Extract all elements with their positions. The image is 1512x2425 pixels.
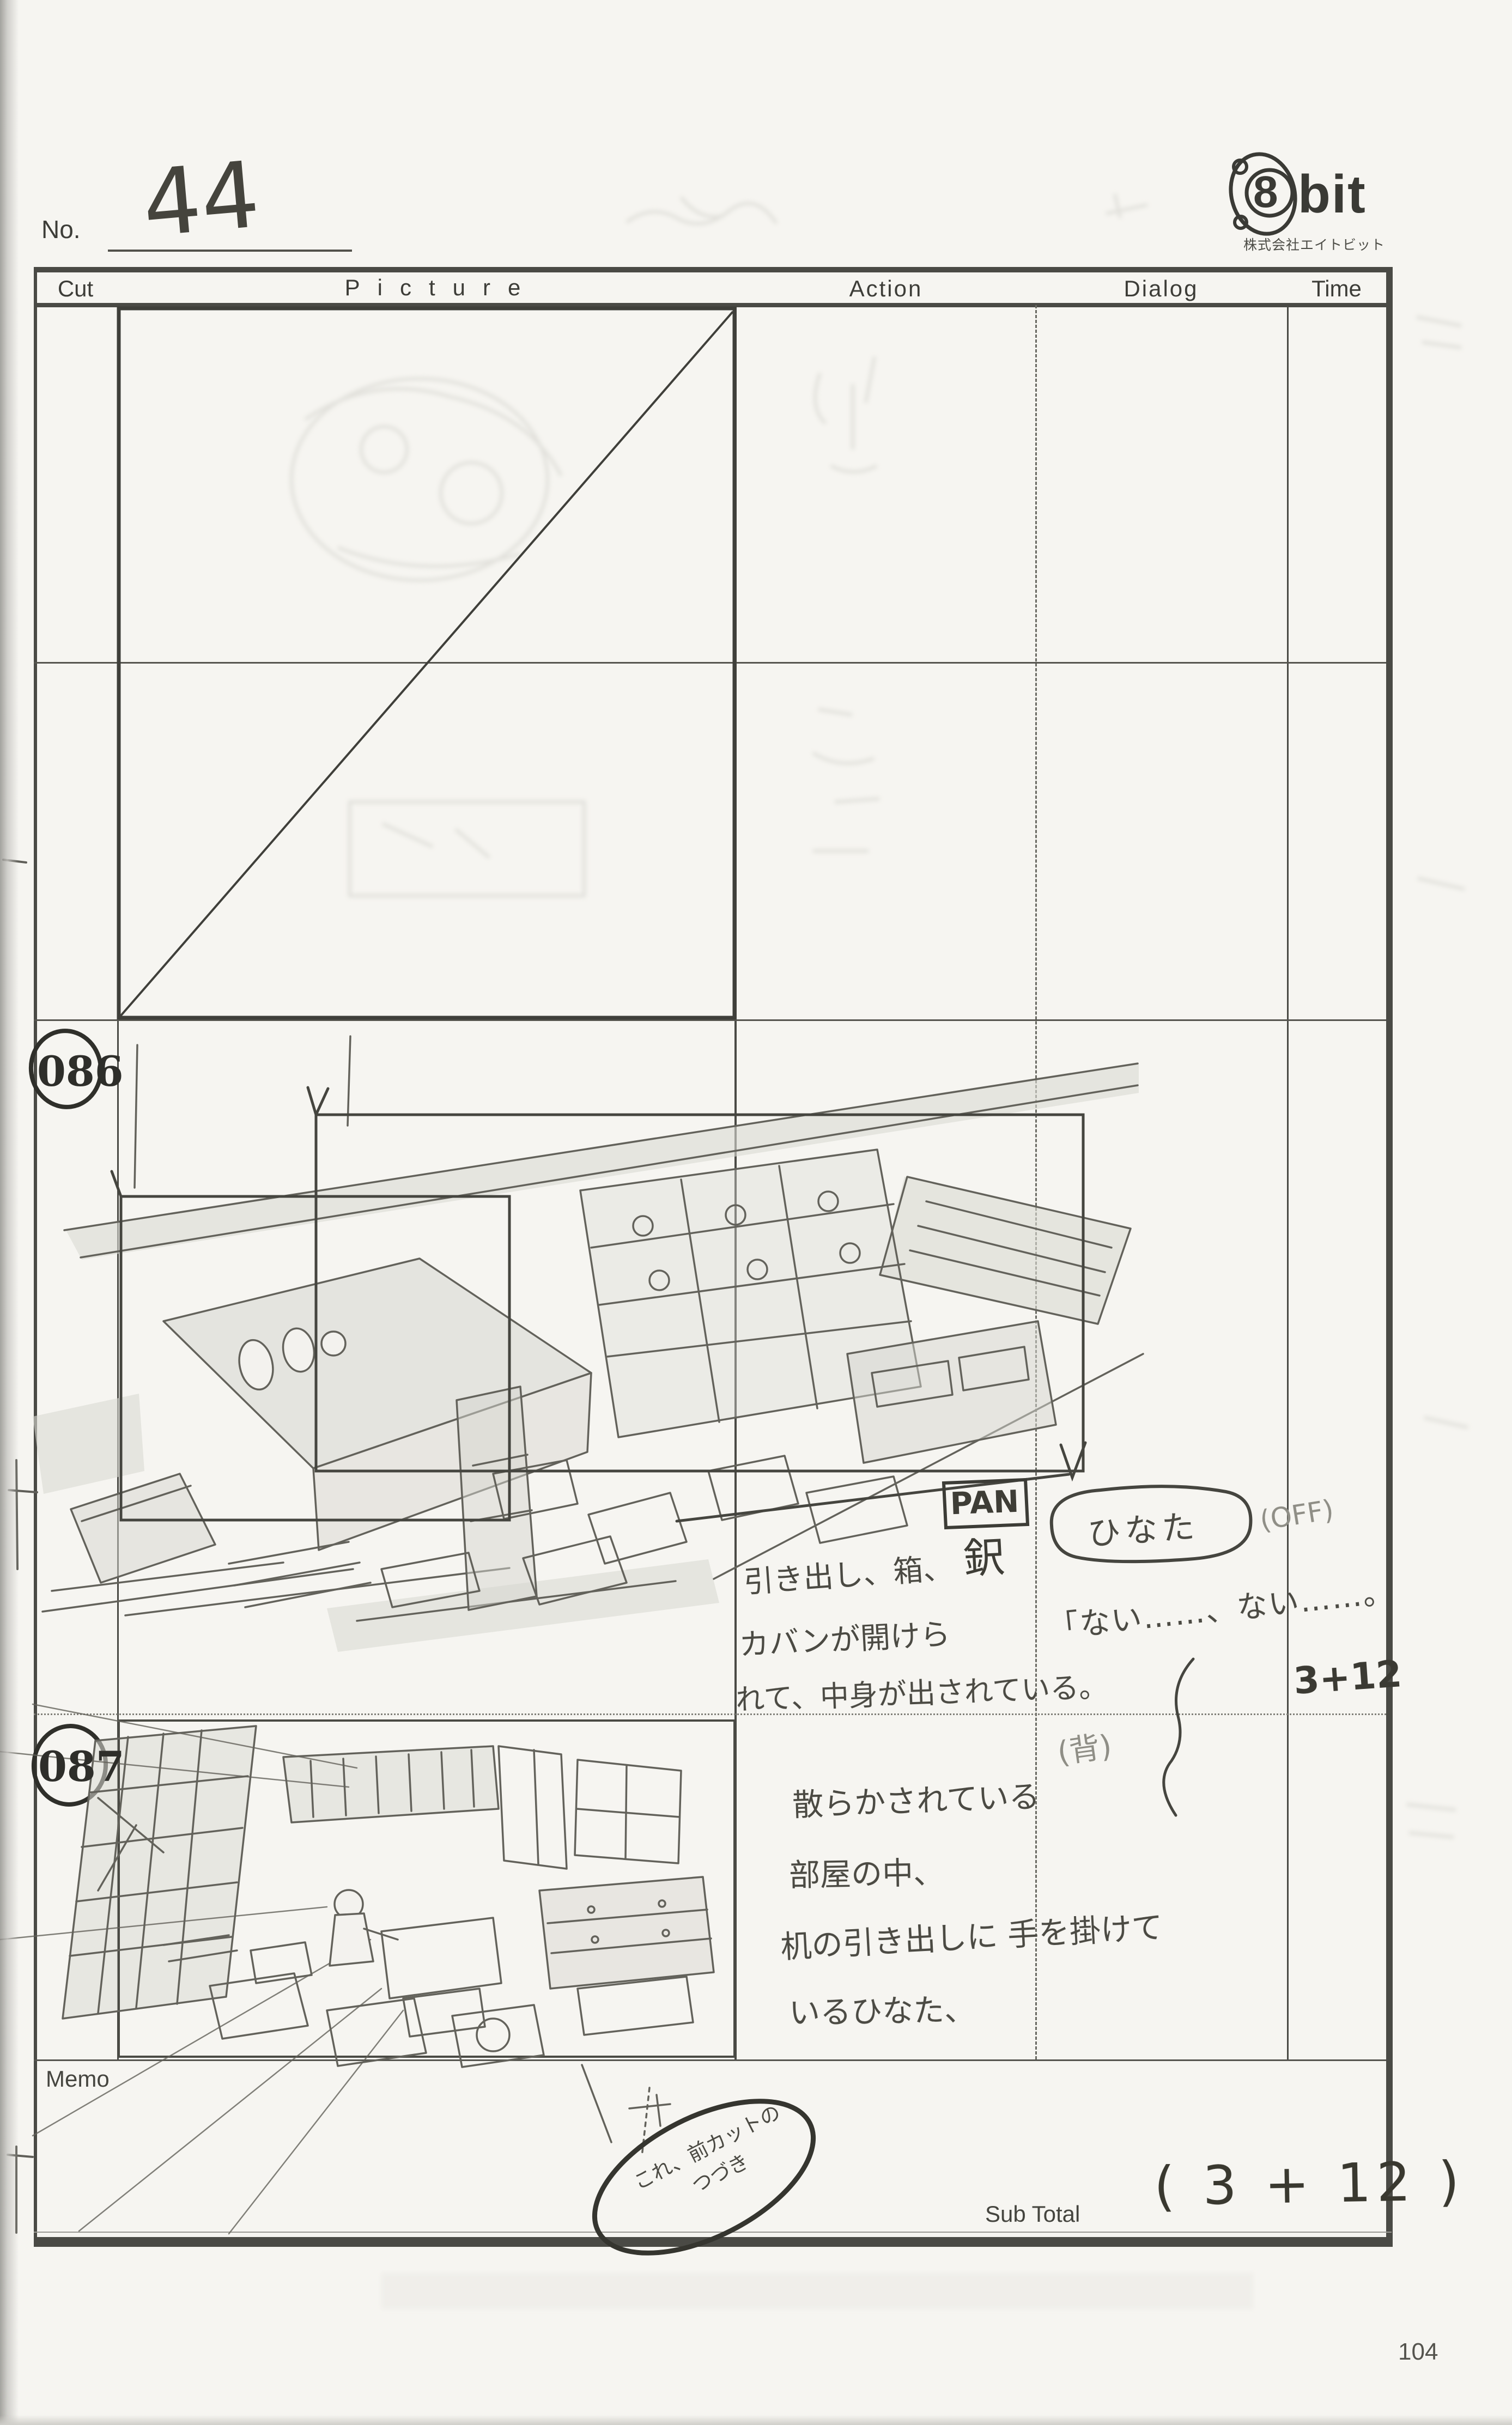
col-sep-cut xyxy=(117,305,119,2059)
table-border-bottom-thin xyxy=(34,2232,1392,2233)
cut-086-action-line-1: 引き出し、箱、 xyxy=(742,1543,955,1602)
col-sep-picture xyxy=(734,305,737,2059)
cut-086-time-value: 3+12 xyxy=(1292,1652,1403,1703)
cut-086-number: 086 xyxy=(37,1047,102,1096)
pencil-art-layer xyxy=(0,0,1512,2425)
header-dialog: Dialog xyxy=(1035,276,1287,302)
subtotal-label: Sub Total xyxy=(985,2201,1080,2227)
header-cut: Cut xyxy=(34,276,117,302)
cut-087-action-line-3: 机の引き出しに 手を掛けて xyxy=(779,1903,1163,1967)
row-sep-1 xyxy=(34,662,1386,664)
table-border-right xyxy=(1386,267,1393,2247)
storyboard-sheet: No. 44 Cut Picture Action Dialog Time 8 … xyxy=(0,0,1512,2425)
cut-number-circles xyxy=(26,1026,110,1808)
cut-086-action-line-2: カバンが開けら xyxy=(738,1609,951,1664)
memo-bubble-note: これ、前カットの つづき xyxy=(624,2095,804,2226)
header-separator xyxy=(34,303,1392,307)
col-sep-dialog-time xyxy=(1287,305,1289,2059)
header-picture: Picture xyxy=(185,275,697,301)
pan-arrow-head xyxy=(1061,1443,1085,1478)
header-time: Time xyxy=(1287,276,1386,302)
logo-company-name: 株式会社エイトビット xyxy=(1243,234,1385,254)
margin-marks xyxy=(3,860,37,2233)
sheet-no-value: 44 xyxy=(138,141,264,258)
cut-087-action-line-2: 部屋の中、 xyxy=(788,1848,944,1895)
cut-086-pan-kanji: 鈬 xyxy=(962,1523,1006,1585)
cut-087-action-line-4: いるひなた、 xyxy=(788,1985,975,2033)
cut-087-action-line-1: 散らかされている xyxy=(792,1772,1041,1825)
row-sep-2 xyxy=(34,1019,1386,1021)
logo-brand-text: bit xyxy=(1298,163,1367,225)
header-action: Action xyxy=(737,276,1035,302)
dialog-brace xyxy=(1164,1659,1193,1815)
cut-086-character-name: ひなた xyxy=(1086,1500,1200,1555)
logo-8-glyph: 8 xyxy=(1253,167,1278,218)
table-border-left xyxy=(34,267,37,2244)
subtotal-value: ( 3 + 12 ) xyxy=(1153,2150,1465,2218)
cut-087-number: 087 xyxy=(38,1742,104,1791)
cut-086-dialog-line: 「ない……、ない……。 xyxy=(1046,1567,1396,1648)
cut-086-dialog-note: (背) xyxy=(1054,1721,1114,1772)
table-border-top xyxy=(34,267,1392,272)
cut-086-off-note: (OFF) xyxy=(1258,1494,1335,1537)
row-sep-memo xyxy=(34,2059,1386,2061)
memo-label: Memo xyxy=(46,2066,110,2092)
cut-086-pan-label: PAN xyxy=(950,1484,1019,1522)
camera-frames-086 xyxy=(112,1087,1085,1521)
page-number: 104 xyxy=(1398,2338,1438,2366)
sheet-no-label: No. xyxy=(41,215,81,244)
cut-086-action-line-3: れて、中身が出されている。 xyxy=(735,1664,1108,1718)
row-sep-3-dotted xyxy=(34,1713,1386,1715)
table-border-bottom xyxy=(34,2237,1393,2247)
